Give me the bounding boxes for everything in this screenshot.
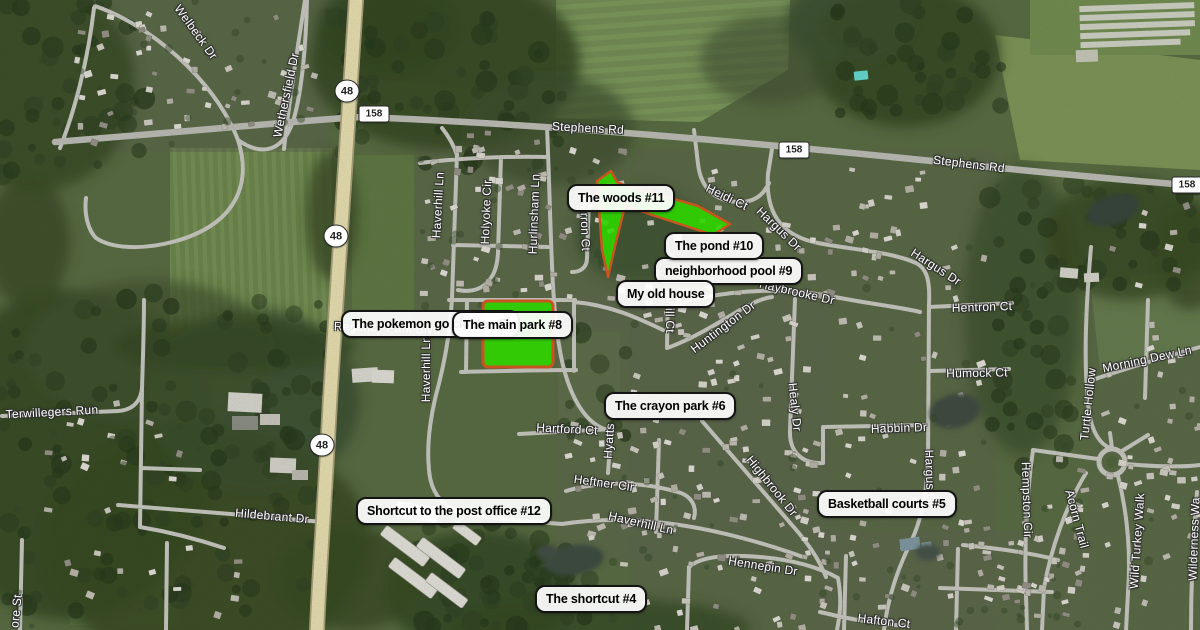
marker-bubble-shortcut-post-office[interactable]: Shortcut to the post office #12 [356,497,552,525]
marker-bubble-the-pond[interactable]: The pond #10 [664,232,764,260]
marker-bubble-my-old-house[interactable]: My old house [616,280,715,308]
marker-bubble-the-shortcut[interactable]: The shortcut #4 [535,585,647,613]
marker-bubble-the-woods[interactable]: The woods #11 [567,184,675,212]
marker-bubble-the-main-park[interactable]: The main park #8 [452,311,573,339]
marker-bubble-basketball-courts[interactable]: Basketball courts #5 [817,490,957,518]
satellite-map[interactable]: Welbeck DrWethersfield DrStephens RdStep… [0,0,1200,630]
marker-bubbles-layer: The woods #11The pokemon go cluster #7ne… [0,0,1200,630]
marker-bubble-the-crayon-park[interactable]: The crayon park #6 [604,392,736,420]
